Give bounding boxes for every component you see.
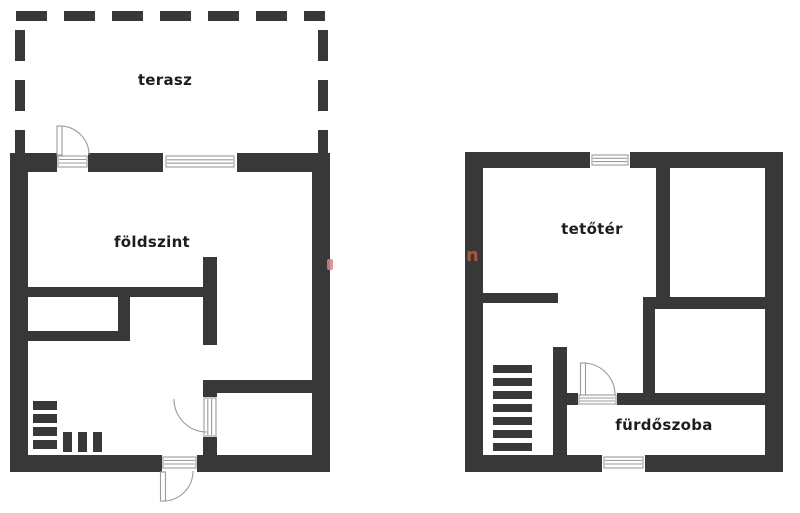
door-swing-arc (583, 363, 615, 395)
watermark-letter-fragment: n (466, 248, 482, 264)
door-leaf (161, 472, 166, 501)
watermark-pink-fragment (327, 259, 333, 270)
stair-tread (493, 365, 532, 373)
wall-segment (10, 153, 57, 172)
window-frame (166, 156, 234, 167)
stair-tread (493, 443, 532, 451)
wall-segment (465, 152, 590, 168)
stair-tread (93, 432, 102, 452)
floorplan-drawing (0, 0, 800, 513)
door-threshold (163, 457, 196, 468)
wall-segment (28, 331, 130, 341)
wall-segment (203, 257, 217, 345)
stair-tread (493, 404, 532, 412)
wall-segment (643, 309, 655, 393)
bathroom-door-swing-icon (579, 363, 616, 404)
door-swing-arc (163, 471, 193, 501)
ground-floor-stairs-icon (33, 401, 102, 452)
stair-tread (33, 427, 57, 436)
stair-tread (78, 432, 87, 452)
terrace-door-swing-icon (57, 126, 89, 167)
stair-tread (33, 401, 57, 410)
door-threshold (204, 398, 216, 436)
ground-floor-walls (10, 153, 330, 472)
wall-segment (203, 380, 312, 393)
stair-tread (493, 391, 532, 399)
wall-segment (617, 393, 765, 405)
door-leaf (581, 363, 586, 395)
stair-tread (33, 440, 57, 449)
wall-segment (553, 347, 567, 455)
wall-segment (312, 153, 330, 472)
room-label-terrace: terasz (138, 71, 192, 89)
wall-segment (465, 455, 602, 472)
entrance-door-swing-icon (161, 457, 197, 501)
wall-segment (203, 437, 217, 455)
wall-segment (465, 152, 483, 472)
attic-top-window-icon (592, 155, 628, 165)
stair-tread (63, 432, 72, 452)
ground-floor-window-icon (166, 156, 234, 167)
stair-tread (493, 378, 532, 386)
door-threshold (579, 395, 616, 404)
wall-segment (643, 297, 765, 309)
floorplan-page: terasz földszint tetőtér fürdőszoba n (0, 0, 800, 513)
wall-segment (630, 152, 783, 168)
room-label-attic: tetőtér (561, 220, 623, 238)
door-threshold (58, 156, 87, 167)
stair-tread (493, 417, 532, 425)
wall-segment (765, 152, 783, 472)
wall-segment (10, 455, 162, 472)
wall-segment (197, 455, 330, 472)
attic-stairs-icon (493, 365, 532, 451)
wall-segment (118, 297, 130, 331)
wall-segment (10, 153, 28, 472)
window-frame (592, 155, 628, 165)
door-leaf (57, 126, 62, 155)
wall-segment (656, 168, 670, 305)
interior-door-swing-icon (174, 398, 216, 436)
wall-segment (88, 153, 163, 172)
wall-segment (483, 293, 558, 303)
window-frame (604, 457, 643, 468)
wall-segment (645, 455, 783, 472)
door-swing-arc (174, 399, 207, 432)
stair-tread (493, 430, 532, 438)
attic-bottom-window-icon (604, 457, 643, 468)
wall-segment (28, 287, 203, 297)
stair-tread (33, 414, 57, 423)
door-swing-arc (60, 126, 89, 155)
room-label-bathroom: fürdőszoba (615, 416, 712, 434)
room-label-ground-floor: földszint (114, 233, 190, 251)
